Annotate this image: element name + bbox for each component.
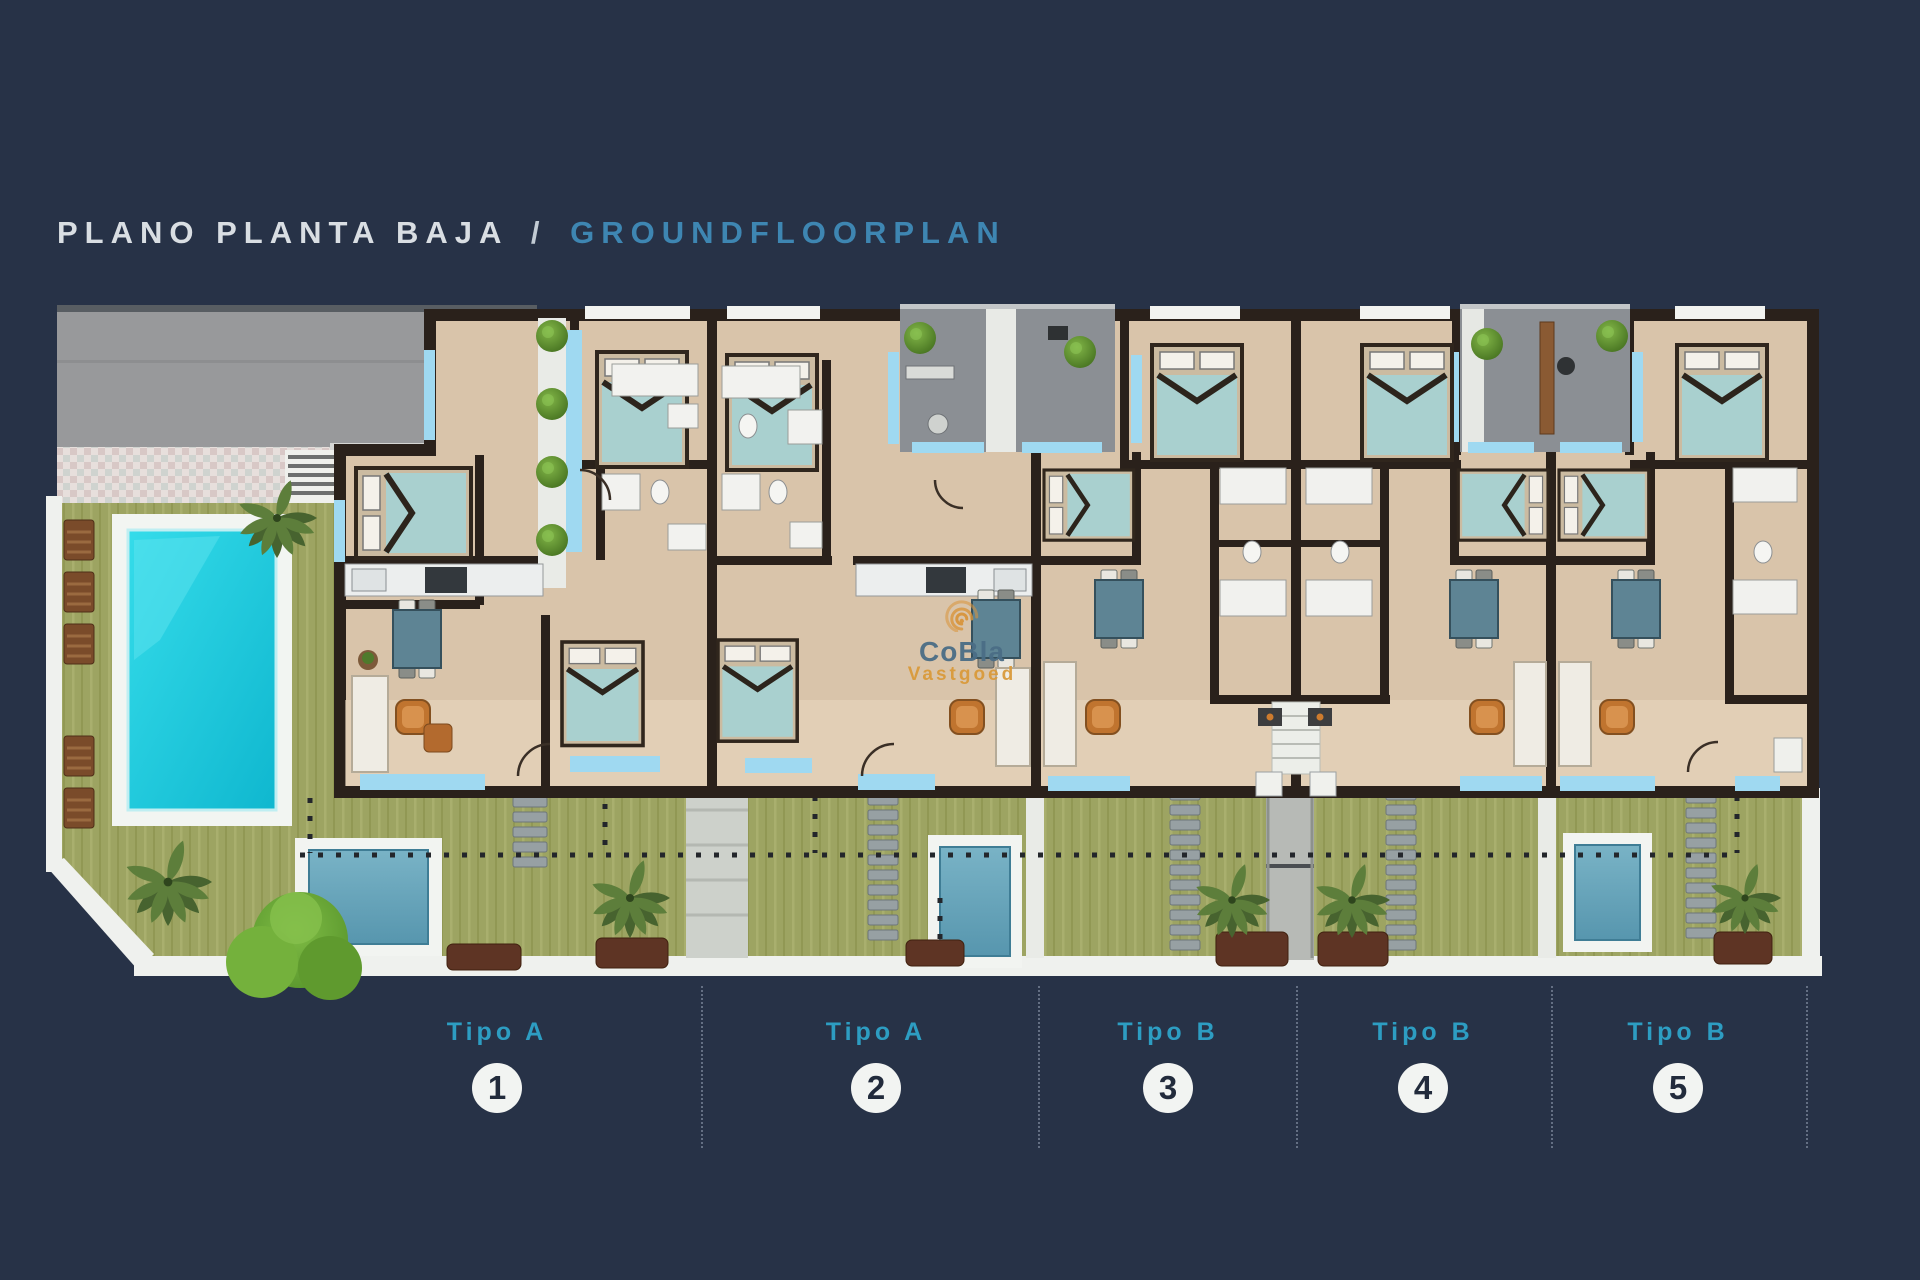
- unit-type-label: Tipo A: [407, 1018, 587, 1047]
- unit-divider-dotted-line: [1038, 986, 1040, 1148]
- title-separator: /: [531, 215, 547, 250]
- unit-label-3: Tipo B 3: [1078, 1018, 1258, 1113]
- unit-label-5: Tipo B 5: [1588, 1018, 1768, 1113]
- unit-divider-dotted-line: [1806, 986, 1808, 1148]
- unit-number-badge: 1: [472, 1063, 522, 1113]
- apartment-building: [334, 304, 1813, 796]
- plunge-pool-unit5: [1563, 833, 1652, 952]
- ground-floor-plan-page: { "title": { "es": "PLANO PLANTA BAJA", …: [0, 0, 1920, 1280]
- communal-pool: [112, 514, 292, 826]
- unit-label-4: Tipo B 4: [1333, 1018, 1513, 1113]
- unit-type-label: Tipo B: [1078, 1018, 1258, 1047]
- watermark-name: CoBla: [908, 637, 1016, 666]
- unit-number-badge: 5: [1653, 1063, 1703, 1113]
- spiral-logo-icon: [939, 598, 985, 632]
- unit-number-badge: 3: [1143, 1063, 1193, 1113]
- unit-number-badge: 2: [851, 1063, 901, 1113]
- unit-label-2: Tipo A 2: [786, 1018, 966, 1113]
- unit-type-label: Tipo B: [1588, 1018, 1768, 1047]
- watermark: CoBla Vastgoed: [908, 598, 1016, 685]
- unit-type-label: Tipo A: [786, 1018, 966, 1047]
- unit-divider-dotted-line: [701, 986, 703, 1148]
- entrance-courtyard-2: [1448, 304, 1643, 453]
- unit-label-1: Tipo A 1: [407, 1018, 587, 1113]
- page-title: PLANO PLANTA BAJA / GROUNDFLOORPLAN: [57, 215, 1006, 251]
- unit-number-badge: 4: [1398, 1063, 1448, 1113]
- unit-divider-dotted-line: [1296, 986, 1298, 1148]
- entrance-courtyard-1: [888, 304, 1142, 453]
- unit1-entry-path: [536, 318, 582, 588]
- title-spanish: PLANO PLANTA BAJA: [57, 215, 507, 250]
- watermark-tagline: Vastgoed: [908, 665, 1016, 685]
- title-english: GROUNDFLOORPLAN: [570, 215, 1006, 250]
- unit-divider-dotted-line: [1551, 986, 1553, 1148]
- unit-type-label: Tipo B: [1333, 1018, 1513, 1047]
